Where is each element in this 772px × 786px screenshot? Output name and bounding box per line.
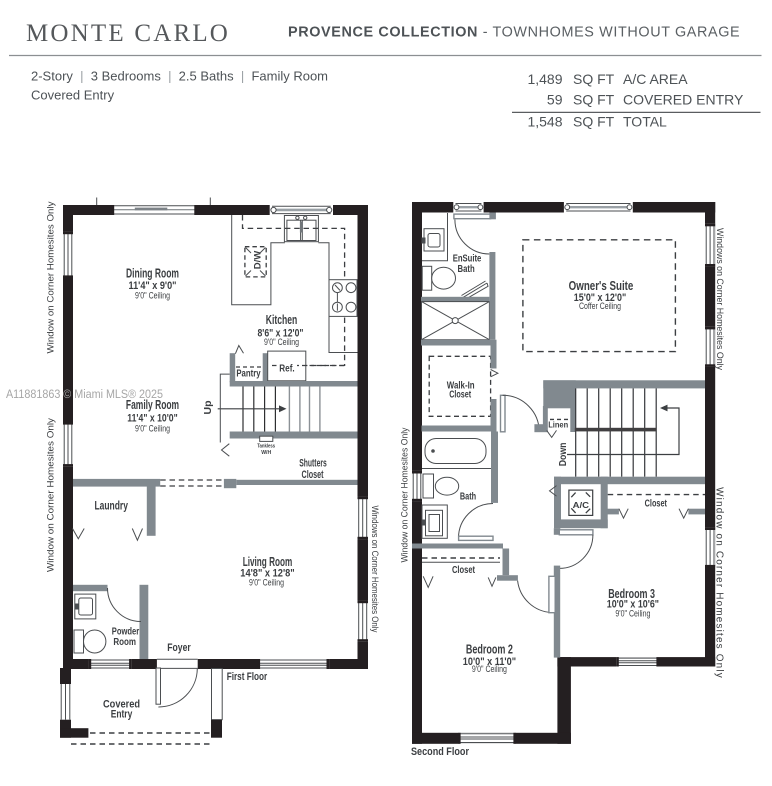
- svg-text:Room: Room: [113, 637, 136, 648]
- svg-text:Pantry: Pantry: [236, 368, 261, 379]
- svg-text:D/W: D/W: [253, 251, 264, 270]
- svg-text:9'0" Ceiling: 9'0" Ceiling: [472, 664, 507, 674]
- svg-text:Closet: Closet: [645, 498, 668, 509]
- svg-text:A/C AREA: A/C AREA: [623, 71, 688, 87]
- svg-text:W/H: W/H: [261, 450, 271, 456]
- svg-text:Up: Up: [202, 401, 214, 415]
- svg-text:Second Floor: Second Floor: [411, 746, 470, 758]
- svg-text:SQ FT: SQ FT: [573, 92, 615, 108]
- svg-text:EnSuite: EnSuite: [453, 254, 482, 265]
- svg-text:TOTAL: TOTAL: [623, 114, 667, 130]
- svg-text:Bath: Bath: [460, 491, 476, 502]
- svg-text:9'0" Ceiling: 9'0" Ceiling: [135, 423, 170, 433]
- svg-text:PROVENCE COLLECTION - TOWNHOME: PROVENCE COLLECTION - TOWNHOMES WITHOUT …: [288, 25, 740, 41]
- svg-text:Bath: Bath: [458, 264, 475, 275]
- svg-text:9'0" Ceiling: 9'0" Ceiling: [615, 608, 650, 618]
- svg-text:9'0" Ceiling: 9'0" Ceiling: [264, 337, 299, 347]
- svg-text:Kitchen: Kitchen: [266, 313, 298, 327]
- svg-text:MONTE CARLO: MONTE CARLO: [26, 20, 230, 47]
- svg-text:Covered Entry: Covered Entry: [31, 88, 115, 103]
- svg-text:59: 59: [547, 92, 563, 108]
- svg-text:Windows on Corner Homesites On: Windows on Corner Homesites Only: [715, 228, 725, 370]
- svg-text:9'0" Ceiling: 9'0" Ceiling: [135, 291, 170, 301]
- svg-text:1,548: 1,548: [527, 114, 562, 130]
- svg-text:Window on Corner Homesites Onl: Window on Corner Homesites Only: [46, 201, 56, 354]
- svg-text:Dining Room: Dining Room: [126, 267, 179, 281]
- svg-text:COVERED ENTRY: COVERED ENTRY: [623, 92, 744, 108]
- svg-text:Linen: Linen: [548, 419, 568, 429]
- svg-text:Window on Corner Homesites Onl: Window on Corner Homesites Only: [400, 427, 410, 562]
- svg-text:Coffer Ceiling: Coffer Ceiling: [579, 301, 621, 311]
- svg-text:Bedroom 2: Bedroom 2: [466, 643, 513, 657]
- svg-text:Tankless: Tankless: [257, 444, 275, 450]
- svg-text:A/C: A/C: [573, 501, 589, 510]
- svg-text:Window on Corner Homesites Onl: Window on Corner Homesites Only: [714, 487, 725, 679]
- svg-text:First Floor: First Floor: [227, 671, 268, 683]
- svg-text:Ref.: Ref.: [279, 364, 295, 375]
- svg-text:9'0" Ceiling: 9'0" Ceiling: [249, 578, 284, 588]
- svg-text:Laundry: Laundry: [94, 499, 128, 513]
- svg-text:SQ FT: SQ FT: [573, 114, 615, 130]
- svg-text:Entry: Entry: [111, 708, 133, 720]
- svg-text:Windows on Corner Homesites On: Windows on Corner Homesites Only: [370, 506, 380, 633]
- svg-text:Closet: Closet: [449, 390, 471, 401]
- svg-text:Closet: Closet: [302, 469, 324, 481]
- svg-text:SQ FT: SQ FT: [573, 71, 615, 87]
- svg-text:Foyer: Foyer: [167, 642, 191, 654]
- svg-text:A11881863 © Miami MLS® 2025: A11881863 © Miami MLS® 2025: [6, 387, 163, 401]
- svg-text:2-Story | 3 Bedrooms | 2.5: 2-Story | 3 Bedrooms | 2.5 Baths | Famil…: [31, 69, 328, 84]
- svg-text:1,489: 1,489: [527, 71, 562, 87]
- svg-text:Closet: Closet: [452, 565, 475, 576]
- svg-text:Shutters: Shutters: [299, 458, 327, 470]
- svg-text:Owner's Suite: Owner's Suite: [569, 278, 634, 293]
- svg-text:Window on Corner Homesites Onl: Window on Corner Homesites Only: [46, 417, 56, 572]
- svg-text:Powder: Powder: [112, 627, 139, 638]
